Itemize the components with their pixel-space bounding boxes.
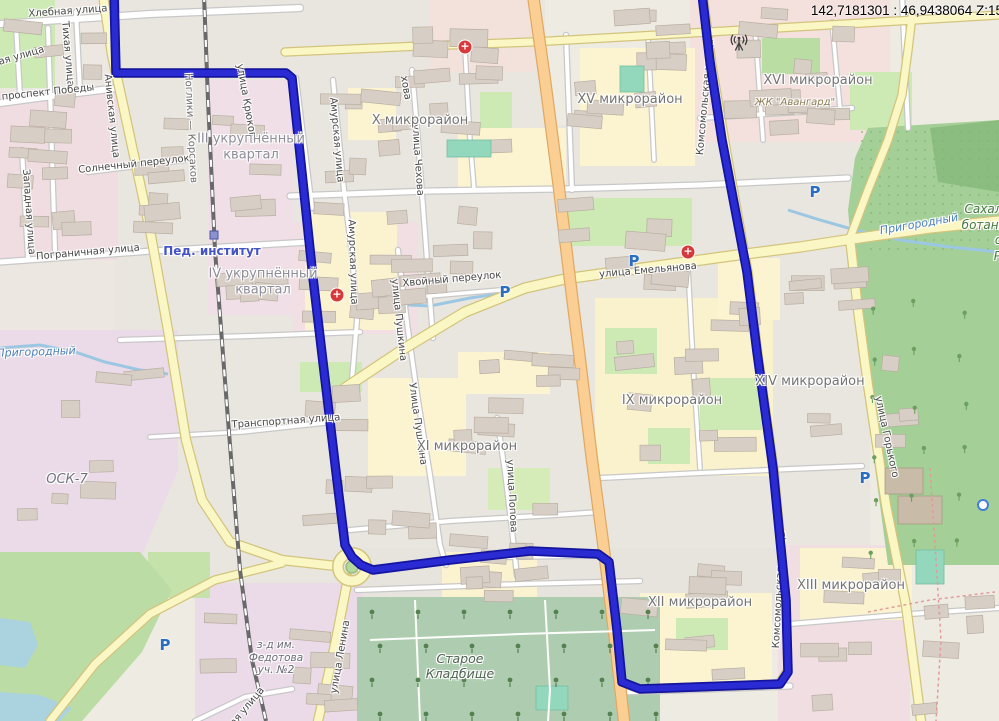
map-canvas[interactable]: Комсомольская улицаКомсомольская улица Х… — [0, 0, 999, 721]
basemap-tiles — [0, 0, 999, 721]
